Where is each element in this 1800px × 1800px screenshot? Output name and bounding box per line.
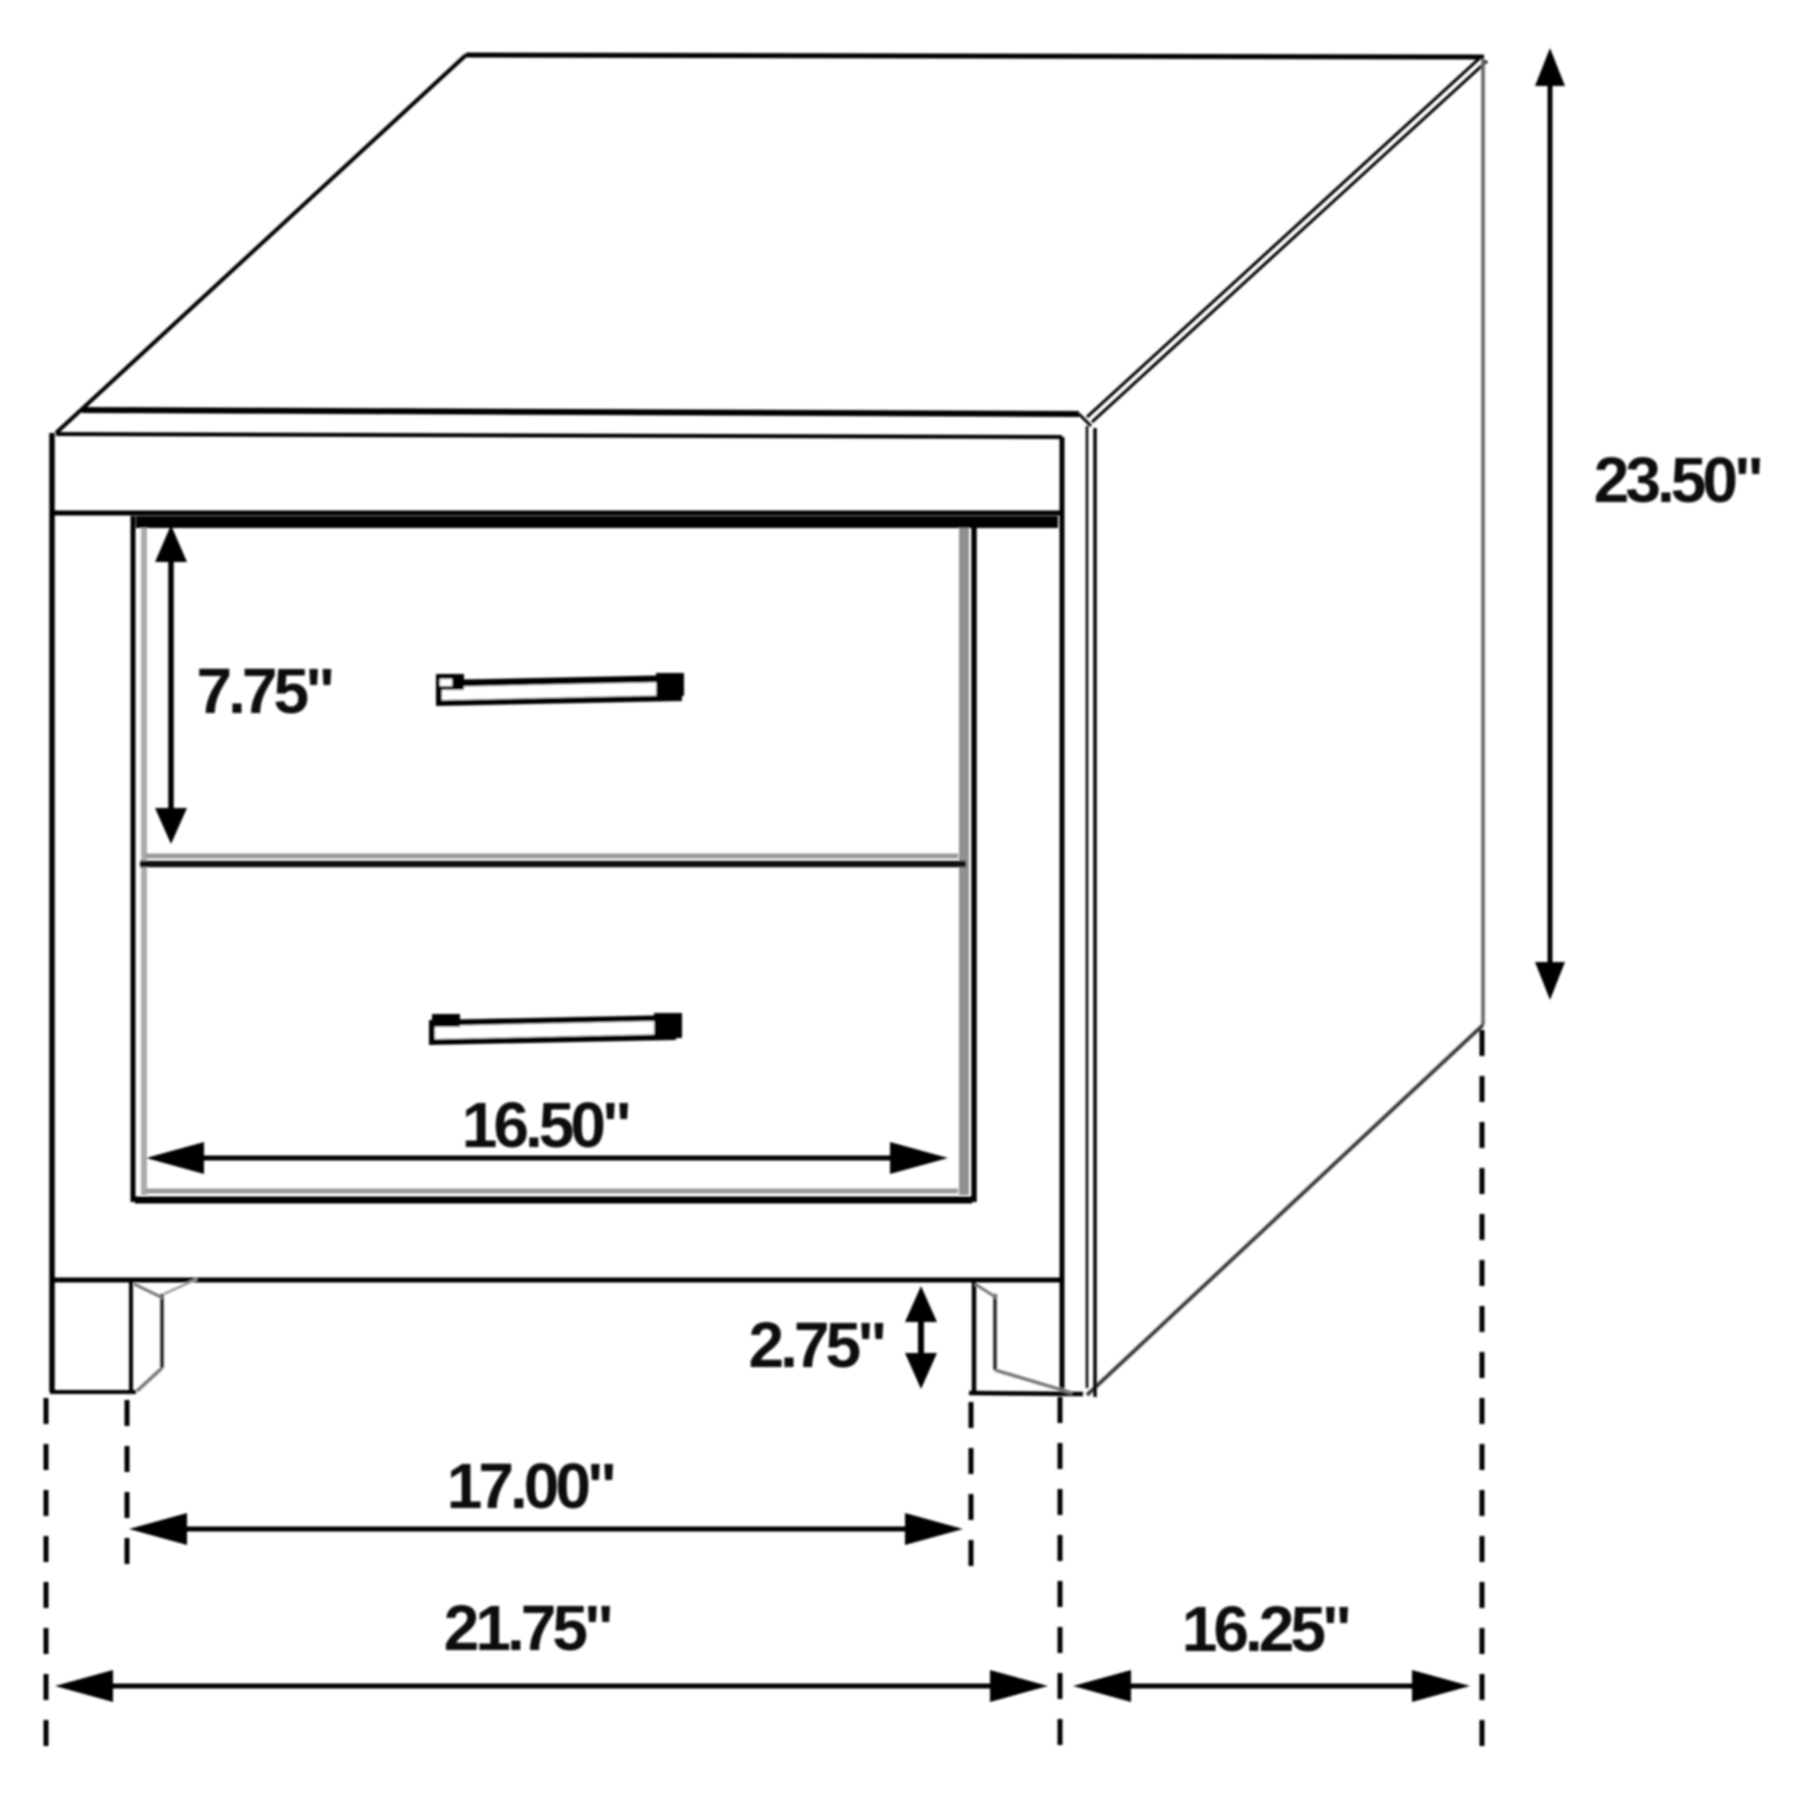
svg-text:2.75": 2.75" [749,1309,885,1381]
svg-text:17.00": 17.00" [447,1450,614,1522]
svg-text:16.50": 16.50" [462,1089,629,1161]
svg-text:21.75": 21.75" [444,1592,611,1664]
svg-text:16.25": 16.25" [1182,1593,1349,1665]
svg-text:23.50": 23.50" [1594,444,1761,516]
svg-text:7.75": 7.75" [197,655,333,727]
